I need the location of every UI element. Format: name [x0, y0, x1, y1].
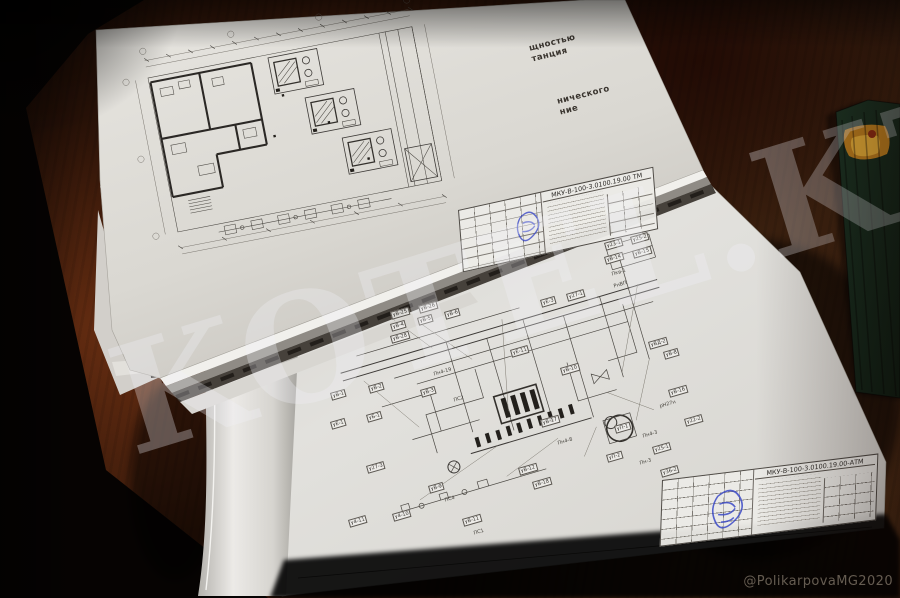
schematic-label: уВ-16 — [668, 385, 688, 398]
schematic-label: уВ-17 — [540, 415, 560, 428]
schematic-label: у27-3 — [366, 461, 386, 474]
title-block-grid — [661, 470, 754, 546]
schematic-label: уП-2 — [606, 451, 623, 463]
schematic-label: у4-10 — [392, 509, 412, 522]
schematic-label: у22-2 — [684, 414, 704, 427]
schematic-label: Пн-3 — [638, 457, 653, 467]
schematic-label: у36-2 — [660, 465, 680, 478]
schematic-label: уВ-10 — [560, 363, 580, 376]
schematic-label: уВ-8 — [663, 348, 680, 360]
schematic-label: у25-1 — [652, 442, 672, 455]
title-block-text-lines — [757, 474, 821, 528]
schematic-label: уВ-12 — [518, 463, 538, 476]
schematic-label: Пн4-3 — [641, 429, 659, 440]
title-block-right-grid — [823, 472, 875, 522]
schematic-label: уВ-18 — [532, 477, 552, 490]
schematic-label: Пн4-8 — [556, 436, 574, 447]
schematic-label: ПС2 — [452, 395, 466, 404]
photo-of-blueprints: уВ-25уВ-26уВ-4уВ-5уВ-6уВ-28уЕ-3у27-1у23-… — [0, 0, 900, 598]
schematic-label: уП-1 — [614, 422, 631, 434]
schematic-label: ПС1 — [472, 528, 486, 537]
schematic-label: рН27н — [658, 399, 678, 410]
schematic-label: ПС4 — [443, 495, 457, 504]
schematic-label: уВ-11 — [462, 514, 482, 527]
schematic-label: уВД-2 — [648, 337, 669, 350]
schematic-label: у4-11 — [348, 515, 368, 528]
photo-credit: @PolikarpovaMG2020 — [743, 574, 893, 589]
schematic-label: уВ-9 — [428, 482, 445, 494]
